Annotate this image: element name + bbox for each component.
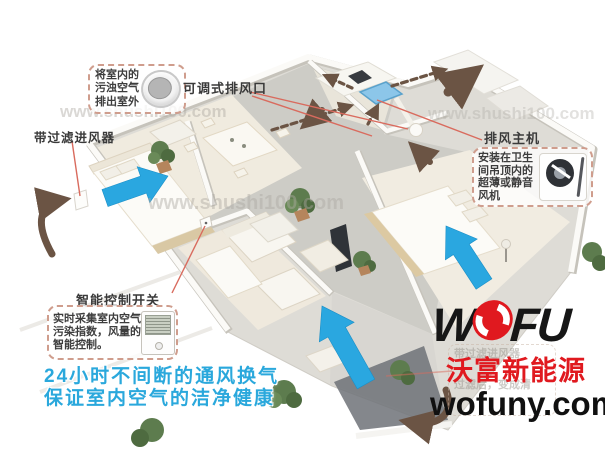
exhaust-host-line1: 安装在卫生 xyxy=(478,152,539,165)
wall-inlet-vent xyxy=(74,190,88,210)
thermostat-screen xyxy=(145,315,171,335)
exhaust-note-line3: 排出室外 xyxy=(95,96,139,110)
infographic-canvas: www.shushi100.com www.shushi100.com www.… xyxy=(0,0,605,452)
exhaust-host-text: 安装在卫生 间吊顶内的 超薄或静音 风机 xyxy=(478,152,539,202)
tagline: 24小时不间断的通风换气 保证室内空气的洁净健康 xyxy=(44,366,279,410)
label-filter-inlet: 带过滤进风器 xyxy=(34,127,115,146)
callout-exhaust-note: 将室内的 污浊空气 排出室外 xyxy=(88,64,186,114)
tagline-line2: 保证室内空气的洁净健康 xyxy=(44,388,279,410)
fan-unit-icon xyxy=(539,153,587,201)
tagline-line1: 24小时不间断的通风换气 xyxy=(44,366,279,388)
exhaust-note-line1: 将室内的 xyxy=(95,69,139,83)
wofu-logo: W FU xyxy=(430,297,571,352)
smart-switch-line3: 智能控制。 xyxy=(53,339,141,352)
smart-switch-text: 实时采集室内空气 污染指数，风量的 智能控制。 xyxy=(53,313,141,352)
label-adjustable-vent: 可调式排风口 xyxy=(183,78,267,97)
round-vent-icon xyxy=(139,67,184,110)
exhaust-note-text: 将室内的 污浊空气 排出室外 xyxy=(95,69,139,110)
exhaust-host-line2: 间吊顶内的 xyxy=(478,165,539,178)
label-exhaust-host: 排风主机 xyxy=(484,128,540,147)
brand-website: wofuny.com xyxy=(430,385,605,423)
round-vent-inner xyxy=(146,76,173,101)
brand-name: 沃富新能源 xyxy=(446,349,586,388)
exhaust-note-line2: 污浊空气 xyxy=(95,82,139,96)
smart-switch-line1: 实时采集室内空气 xyxy=(53,313,141,326)
thermostat-icon xyxy=(141,311,175,355)
exhaust-host-line3: 超薄或静音 xyxy=(478,177,539,190)
callout-smart-switch: 实时采集室内空气 污染指数，风量的 智能控制。 xyxy=(47,305,178,360)
smart-switch-line2: 污染指数，风量的 xyxy=(53,326,141,339)
fan-bracket xyxy=(577,157,585,197)
exhaust-host-line4: 风机 xyxy=(478,190,539,203)
ceiling-outlet xyxy=(410,124,423,137)
callout-exhaust-host: 安装在卫生 间吊顶内的 超薄或静音 风机 xyxy=(472,147,593,207)
thermostat-button xyxy=(155,342,163,350)
